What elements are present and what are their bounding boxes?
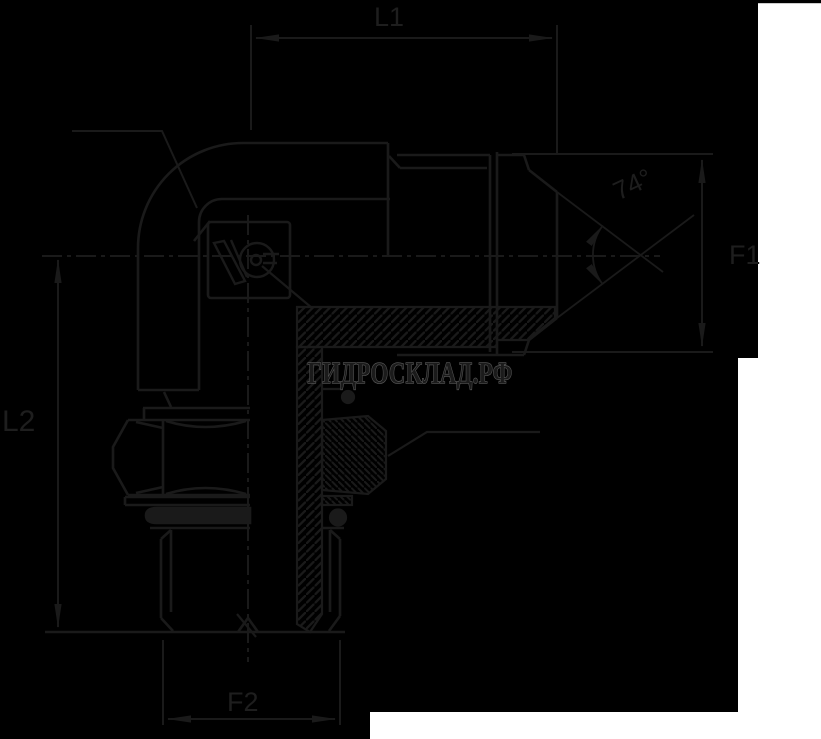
technical-drawing: L1 L2 F1 F2 74° ГИДРОСКЛАД.РФ [0, 0, 821, 739]
watermark-text: ГИДРОСКЛАД.РФ [308, 355, 513, 390]
upper-seal-section [342, 391, 354, 403]
o-ring [146, 508, 250, 523]
dimension-label-l1: L1 [374, 2, 404, 32]
dimension-label-f2: F2 [227, 687, 259, 717]
section-washer [322, 496, 352, 505]
dimension-label-f1: F1 [729, 240, 761, 270]
section-locknut [322, 416, 386, 494]
page: L1 L2 F1 F2 74° ГИДРОСКЛАД.РФ [0, 0, 821, 739]
dimension-label-l2: L2 [2, 405, 35, 438]
section-flange-band [297, 307, 555, 347]
o-ring-section [330, 510, 346, 526]
